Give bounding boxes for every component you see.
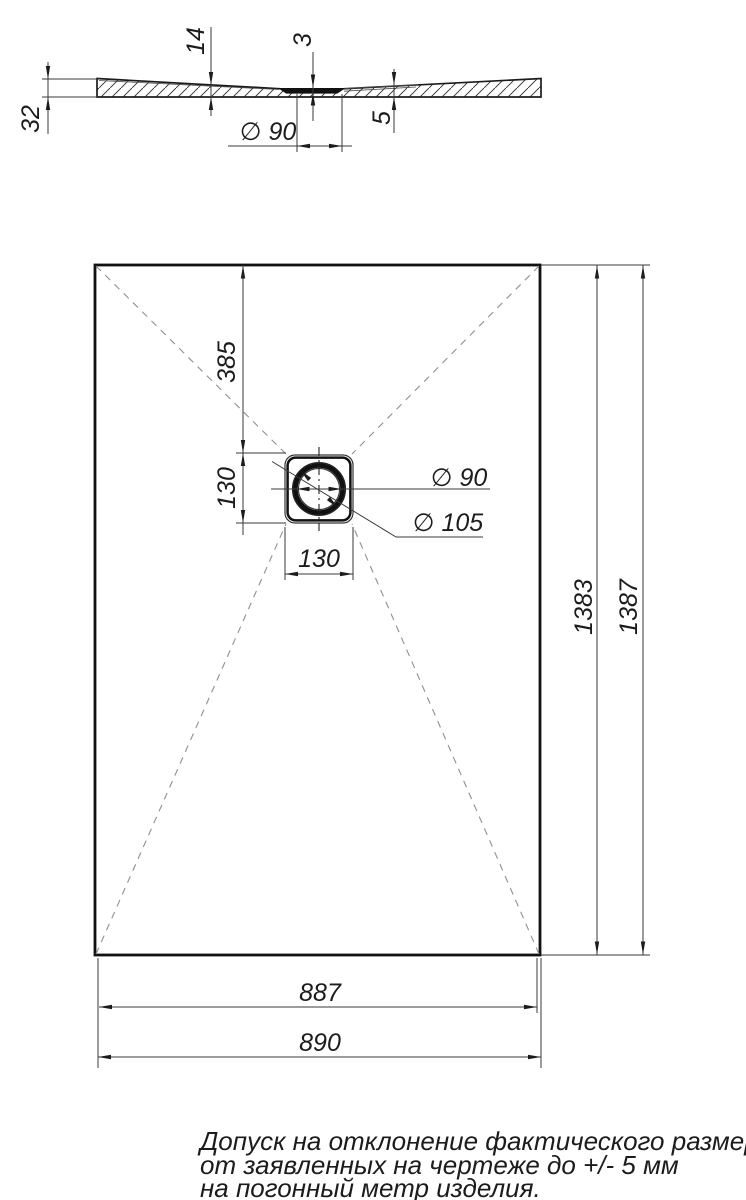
- dim-890-label: 890: [299, 1029, 341, 1057]
- dim-130-horizontal-label: 130: [298, 545, 340, 573]
- plan-view: 385 130 130 ∅ 90 ∅ 105 1383 1387 887 890: [95, 265, 650, 1068]
- dim-385-label: 385: [213, 341, 241, 383]
- tolerance-note-line3: на погонный метр изделия.: [200, 1173, 541, 1200]
- section-view: 32 14 3 5 ∅ 90: [17, 27, 541, 152]
- plan-dia-90-label: ∅ 90: [431, 464, 488, 492]
- section-drain-recess: [278, 88, 345, 94]
- drawing-canvas: 32 14 3 5 ∅ 90: [0, 0, 746, 1200]
- dim-3-label: 3: [289, 33, 317, 47]
- section-dia-90-label: ∅ 90: [240, 118, 297, 146]
- tolerance-note: Допуск на отклонение фактического размер…: [197, 1126, 746, 1200]
- dim-14-label: 14: [182, 27, 210, 55]
- dim-5-label: 5: [368, 111, 396, 125]
- dim-1383-label: 1383: [570, 579, 598, 635]
- dim-887-label: 887: [299, 979, 342, 1007]
- section-body: [97, 79, 541, 98]
- plan-dia-105-label: ∅ 105: [413, 509, 484, 537]
- tray-outline: [95, 265, 540, 955]
- technical-drawing: 32 14 3 5 ∅ 90: [0, 0, 746, 1200]
- dim-1387-label: 1387: [615, 578, 643, 635]
- dim-130-vertical-label: 130: [213, 467, 241, 509]
- dim-32-label: 32: [17, 105, 45, 133]
